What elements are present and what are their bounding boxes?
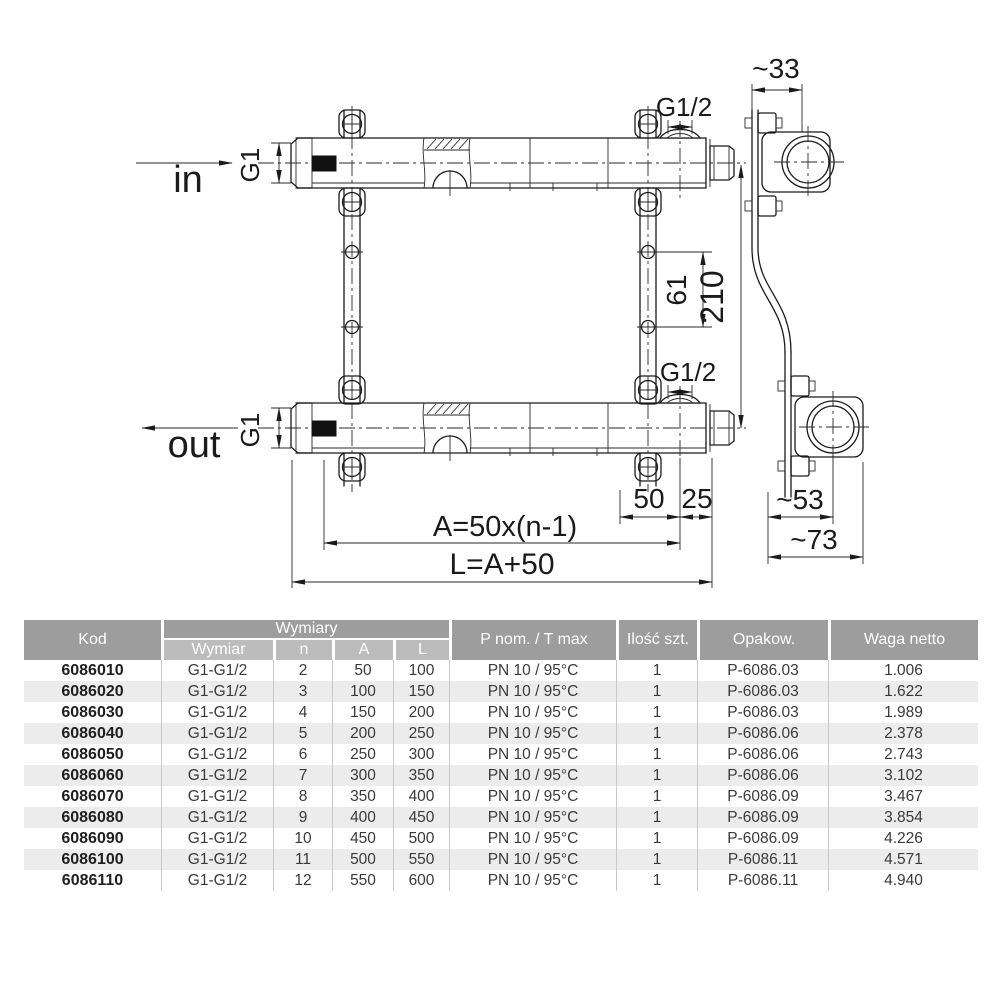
cell-ilosc: 1 (616, 828, 697, 849)
cell-kod: 6086050 (24, 744, 161, 765)
cell-kod: 6086100 (24, 849, 161, 870)
cell-kod: 6086110 (24, 870, 161, 891)
cell-opakow: P-6086.06 (697, 765, 828, 786)
spec-table-body: 6086010G1-G1/2250100PN 10 / 95°C1P-6086.… (24, 660, 978, 891)
table-row: 6086040G1-G1/25200250PN 10 / 95°C1P-6086… (24, 723, 978, 744)
header-wymiary-group: Wymiary (161, 620, 449, 638)
cell-waga: 4.940 (828, 870, 978, 891)
cell-opakow: P-6086.09 (697, 828, 828, 849)
cell-ilosc: 1 (616, 849, 697, 870)
dim-l-formula: L=A+50 (449, 548, 554, 581)
table-row: 6086020G1-G1/23100150PN 10 / 95°C1P-6086… (24, 681, 978, 702)
cell-kod: 6086020 (24, 681, 161, 702)
cell-l: 450 (393, 807, 449, 828)
cell-pnom: PN 10 / 95°C (449, 702, 616, 723)
cell-pnom: PN 10 / 95°C (449, 828, 616, 849)
cell-pnom: PN 10 / 95°C (449, 723, 616, 744)
cell-a: 150 (332, 702, 393, 723)
cell-wymiar: G1-G1/2 (161, 681, 273, 702)
flow-out-label: out (168, 424, 221, 466)
dim-61: 61 (661, 274, 692, 305)
cell-opakow: P-6086.11 (697, 870, 828, 891)
technical-drawing: in out G1 G1 G1/2 G1/2 (0, 0, 1000, 614)
catalog-page: in out G1 G1 G1/2 G1/2 (0, 0, 1000, 1000)
cell-kod: 6086010 (24, 660, 161, 681)
cell-a: 550 (332, 870, 393, 891)
cell-ilosc: 1 (616, 681, 697, 702)
header-l: L (393, 638, 449, 660)
cell-waga: 2.378 (828, 723, 978, 744)
cell-waga: 2.743 (828, 744, 978, 765)
cell-waga: 1.622 (828, 681, 978, 702)
header-opakow: Opakow. (697, 620, 828, 660)
cell-ilosc: 1 (616, 870, 697, 891)
cell-opakow: P-6086.06 (697, 723, 828, 744)
cell-a: 200 (332, 723, 393, 744)
cell-a: 400 (332, 807, 393, 828)
dim-g1-outlet: G1 (235, 413, 265, 448)
cell-l: 500 (393, 828, 449, 849)
cell-waga: 1.989 (828, 702, 978, 723)
table-row: 6086070G1-G1/28350400PN 10 / 95°C1P-6086… (24, 786, 978, 807)
table-row: 6086110G1-G1/212550600PN 10 / 95°C1P-608… (24, 870, 978, 891)
cell-n: 8 (273, 786, 332, 807)
cell-l: 350 (393, 765, 449, 786)
side-view: ~33 (745, 53, 869, 564)
header-a: A (332, 638, 393, 660)
table-row: 6086090G1-G1/210450500PN 10 / 95°C1P-608… (24, 828, 978, 849)
table-row: 6086060G1-G1/27300350PN 10 / 95°C1P-6086… (24, 765, 978, 786)
cell-wymiar: G1-G1/2 (161, 849, 273, 870)
cell-n: 9 (273, 807, 332, 828)
header-n: n (273, 638, 332, 660)
cell-l: 400 (393, 786, 449, 807)
cell-wymiar: G1-G1/2 (161, 828, 273, 849)
cell-waga: 4.571 (828, 849, 978, 870)
header-wymiar: Wymiar (161, 638, 273, 660)
cell-wymiar: G1-G1/2 (161, 765, 273, 786)
spec-table-header: Kod Wymiary P nom. / T max Ilość szt. Op… (24, 620, 978, 660)
cell-pnom: PN 10 / 95°C (449, 681, 616, 702)
cell-l: 550 (393, 849, 449, 870)
cell-a: 350 (332, 786, 393, 807)
cell-pnom: PN 10 / 95°C (449, 744, 616, 765)
cell-n: 2 (273, 660, 332, 681)
cell-wymiar: G1-G1/2 (161, 744, 273, 765)
cell-n: 4 (273, 702, 332, 723)
cell-kod: 6086060 (24, 765, 161, 786)
spec-table: Kod Wymiary P nom. / T max Ilość szt. Op… (24, 620, 978, 891)
cell-l: 100 (393, 660, 449, 681)
cell-kod: 6086030 (24, 702, 161, 723)
cell-kod: 6086040 (24, 723, 161, 744)
cell-l: 150 (393, 681, 449, 702)
cell-pnom: PN 10 / 95°C (449, 870, 616, 891)
header-waga-netto: Waga netto (828, 620, 978, 660)
dim-g12-bottom: G1/2 (660, 357, 716, 387)
cell-wymiar: G1-G1/2 (161, 870, 273, 891)
table-row: 6086100G1-G1/211500550PN 10 / 95°C1P-608… (24, 849, 978, 870)
cell-n: 12 (273, 870, 332, 891)
cell-wymiar: G1-G1/2 (161, 786, 273, 807)
cell-waga: 3.854 (828, 807, 978, 828)
cell-wymiar: G1-G1/2 (161, 723, 273, 744)
cell-a: 450 (332, 828, 393, 849)
cell-l: 600 (393, 870, 449, 891)
cell-waga: 3.467 (828, 786, 978, 807)
dim-73: ~73 (790, 524, 838, 555)
dim-a-formula: A=50x(n-1) (433, 511, 577, 543)
cell-wymiar: G1-G1/2 (161, 660, 273, 681)
cell-n: 10 (273, 828, 332, 849)
dim-50: 50 (633, 483, 664, 514)
cell-pnom: PN 10 / 95°C (449, 786, 616, 807)
cell-waga: 1.006 (828, 660, 978, 681)
table-row: 6086030G1-G1/24150200PN 10 / 95°C1P-6086… (24, 702, 978, 723)
cell-ilosc: 1 (616, 744, 697, 765)
cell-a: 500 (332, 849, 393, 870)
table-row: 6086010G1-G1/2250100PN 10 / 95°C1P-6086.… (24, 660, 978, 681)
table-row: 6086050G1-G1/26250300PN 10 / 95°C1P-6086… (24, 744, 978, 765)
cell-kod: 6086090 (24, 828, 161, 849)
cell-pnom: PN 10 / 95°C (449, 807, 616, 828)
dim-25: 25 (681, 483, 712, 514)
cell-a: 100 (332, 681, 393, 702)
cell-ilosc: 1 (616, 765, 697, 786)
cell-pnom: PN 10 / 95°C (449, 660, 616, 681)
cell-ilosc: 1 (616, 807, 697, 828)
cell-l: 250 (393, 723, 449, 744)
cell-ilosc: 1 (616, 723, 697, 744)
cell-wymiar: G1-G1/2 (161, 807, 273, 828)
dim-g12-top: G1/2 (656, 92, 712, 122)
cell-pnom: PN 10 / 95°C (449, 765, 616, 786)
cell-kod: 6086070 (24, 786, 161, 807)
manifold-bottom-bar (258, 386, 746, 464)
cell-a: 250 (332, 744, 393, 765)
cell-opakow: P-6086.03 (697, 660, 828, 681)
cell-waga: 4.226 (828, 828, 978, 849)
cell-n: 5 (273, 723, 332, 744)
header-ilosc-szt: Ilość szt. (616, 620, 697, 660)
cell-opakow: P-6086.09 (697, 807, 828, 828)
cell-l: 300 (393, 744, 449, 765)
cell-opakow: P-6086.03 (697, 702, 828, 723)
cell-n: 6 (273, 744, 332, 765)
cell-n: 3 (273, 681, 332, 702)
cell-wymiar: G1-G1/2 (161, 702, 273, 723)
mounting-rail-right (635, 106, 661, 492)
cell-opakow: P-6086.11 (697, 849, 828, 870)
dim-210: 210 (694, 270, 730, 323)
cell-waga: 3.102 (828, 765, 978, 786)
front-view: in out G1 G1 G1/2 G1/2 (136, 92, 746, 588)
cell-ilosc: 1 (616, 702, 697, 723)
cell-n: 7 (273, 765, 332, 786)
cell-opakow: P-6086.06 (697, 744, 828, 765)
cell-opakow: P-6086.09 (697, 786, 828, 807)
cell-pnom: PN 10 / 95°C (449, 849, 616, 870)
cell-opakow: P-6086.03 (697, 681, 828, 702)
dim-33: ~33 (752, 53, 800, 84)
cell-a: 300 (332, 765, 393, 786)
header-pnom-tmax: P nom. / T max (449, 620, 616, 660)
dim-g1-inlet: G1 (235, 148, 265, 183)
cell-ilosc: 1 (616, 786, 697, 807)
cell-l: 200 (393, 702, 449, 723)
manifold-top-bar (258, 121, 746, 199)
table-row: 6086080G1-G1/29400450PN 10 / 95°C1P-6086… (24, 807, 978, 828)
flow-in-label: in (173, 159, 203, 201)
cell-a: 50 (332, 660, 393, 681)
dim-53: ~53 (776, 484, 824, 515)
mounting-rail-left (339, 106, 365, 492)
cell-n: 11 (273, 849, 332, 870)
header-kod: Kod (24, 620, 161, 660)
cell-kod: 6086080 (24, 807, 161, 828)
cell-ilosc: 1 (616, 660, 697, 681)
